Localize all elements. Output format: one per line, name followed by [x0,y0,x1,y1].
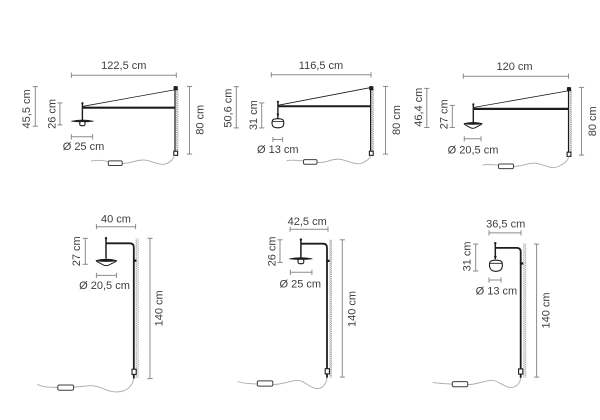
svg-text:Ø 20,5 cm: Ø 20,5 cm [79,280,130,292]
svg-text:26 cm: 26 cm [46,99,58,129]
svg-text:140 cm: 140 cm [540,292,552,328]
svg-text:40 cm: 40 cm [101,214,131,226]
svg-text:Ø 25 cm: Ø 25 cm [63,141,105,153]
svg-text:27 cm: 27 cm [71,236,83,266]
svg-text:80 cm: 80 cm [587,106,599,136]
svg-text:120 cm: 120 cm [496,61,532,73]
svg-text:122,5 cm: 122,5 cm [101,60,146,72]
svg-text:46,4 cm: 46,4 cm [413,88,425,127]
svg-text:80 cm: 80 cm [391,105,403,135]
svg-text:Ø 13 cm: Ø 13 cm [476,286,518,298]
svg-text:80 cm: 80 cm [195,105,207,135]
svg-text:27 cm: 27 cm [438,99,450,129]
svg-text:Ø 13 cm: Ø 13 cm [257,144,299,156]
svg-text:Ø 25 cm: Ø 25 cm [280,278,322,290]
svg-text:116,5 cm: 116,5 cm [299,60,343,72]
svg-text:42,5 cm: 42,5 cm [288,216,327,228]
svg-text:45,5 cm: 45,5 cm [21,89,33,128]
svg-text:50,6 cm: 50,6 cm [222,89,234,128]
svg-text:140 cm: 140 cm [346,291,358,327]
svg-text:140 cm: 140 cm [154,290,166,326]
svg-text:Ø 20,5 cm: Ø 20,5 cm [448,144,499,156]
svg-text:31 cm: 31 cm [461,241,473,271]
svg-text:26 cm: 26 cm [266,236,278,266]
svg-text:31 cm: 31 cm [248,100,260,130]
svg-text:36,5 cm: 36,5 cm [486,218,525,230]
